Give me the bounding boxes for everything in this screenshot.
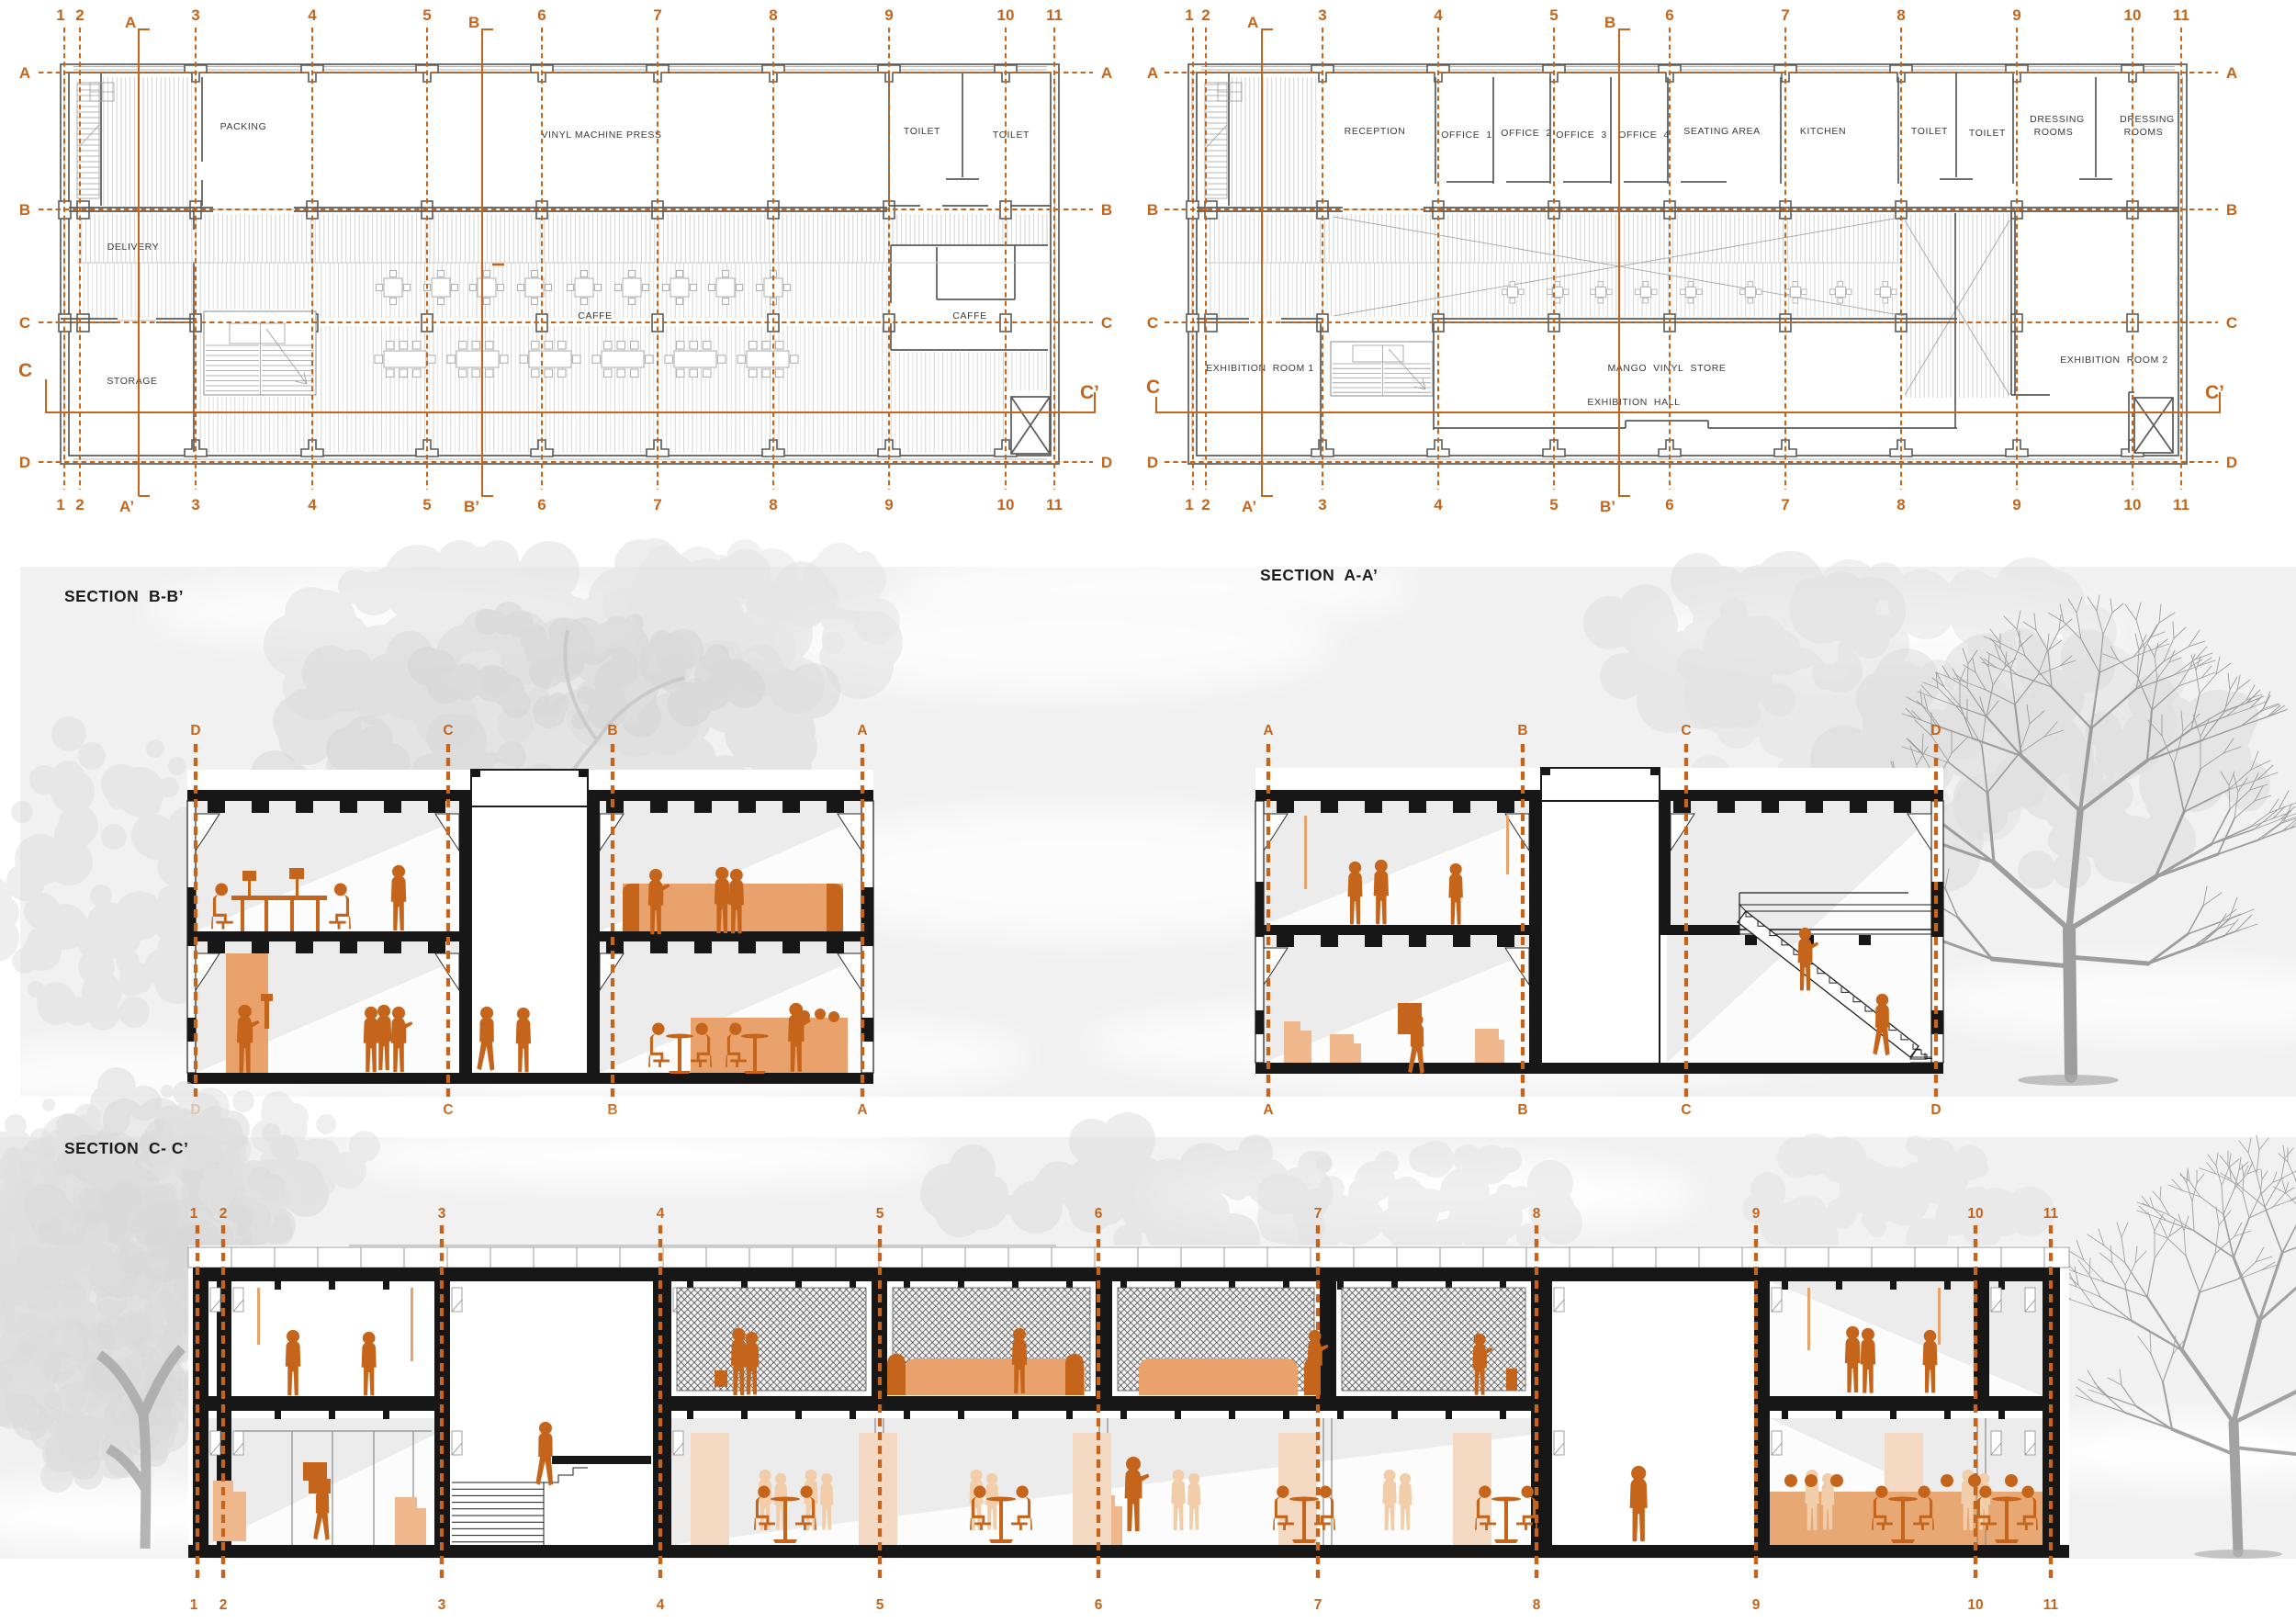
- svg-text:DRESSING: DRESSING: [2120, 114, 2175, 125]
- svg-text:2: 2: [219, 1206, 228, 1222]
- svg-text:B: B: [607, 1102, 617, 1118]
- svg-text:11: 11: [2043, 1597, 2059, 1613]
- svg-text:1: 1: [1185, 6, 1193, 24]
- svg-text:10: 10: [997, 496, 1015, 513]
- svg-text:4: 4: [657, 1597, 665, 1613]
- svg-text:MANGO VINYL STORE: MANGO VINYL STORE: [1607, 363, 1726, 374]
- svg-text:B: B: [1517, 723, 1527, 738]
- svg-text:8: 8: [1533, 1206, 1541, 1222]
- svg-text:2: 2: [219, 1597, 228, 1613]
- svg-text:7: 7: [1314, 1206, 1322, 1222]
- svg-text:6: 6: [1095, 1597, 1103, 1613]
- svg-text:8: 8: [1896, 496, 1905, 513]
- svg-text:PACKING: PACKING: [220, 121, 267, 132]
- svg-text:EXHIBITION HALL: EXHIBITION HALL: [1587, 397, 1680, 408]
- svg-text:A: A: [1147, 64, 1158, 82]
- svg-text:6: 6: [537, 496, 546, 513]
- svg-text:B’: B’: [1600, 498, 1615, 515]
- svg-text:KITCHEN: KITCHEN: [1800, 126, 1846, 137]
- svg-text:6: 6: [1095, 1206, 1103, 1222]
- svg-text:B: B: [607, 723, 617, 738]
- svg-text:10: 10: [2124, 6, 2142, 24]
- svg-text:1: 1: [56, 496, 64, 513]
- svg-text:OFFICE 2: OFFICE 2: [1501, 128, 1552, 139]
- svg-text:EXHIBITION ROOM 2: EXHIBITION ROOM 2: [2060, 355, 2168, 366]
- svg-text:1: 1: [190, 1597, 198, 1613]
- svg-text:C: C: [1681, 723, 1691, 738]
- svg-text:B’: B’: [464, 498, 479, 515]
- svg-text:CAFFE: CAFFE: [952, 310, 986, 321]
- svg-text:9: 9: [884, 496, 893, 513]
- svg-text:A: A: [1247, 14, 1258, 31]
- svg-text:11: 11: [2173, 6, 2189, 24]
- svg-text:9: 9: [1752, 1206, 1761, 1222]
- svg-text:B: B: [1517, 1102, 1527, 1118]
- svg-text:B: B: [1604, 14, 1615, 31]
- svg-text:4: 4: [308, 6, 317, 24]
- svg-text:8: 8: [769, 6, 777, 24]
- svg-text:DELIVERY: DELIVERY: [107, 242, 160, 253]
- svg-text:A’: A’: [1242, 498, 1256, 515]
- svg-text:TOILET: TOILET: [1911, 126, 1948, 137]
- svg-text:A: A: [1263, 1102, 1273, 1118]
- svg-text:4: 4: [657, 1206, 665, 1222]
- svg-text:A: A: [857, 1102, 867, 1118]
- svg-text:A: A: [19, 64, 30, 82]
- svg-text:5: 5: [1549, 496, 1558, 513]
- svg-text:DRESSING: DRESSING: [2030, 114, 2085, 125]
- svg-text:C’: C’: [1080, 382, 1099, 403]
- svg-text:3: 3: [438, 1597, 446, 1613]
- svg-text:A: A: [857, 723, 867, 738]
- svg-text:SECTION A-A’: SECTION A-A’: [1260, 566, 1378, 584]
- svg-text:C’: C’: [2205, 382, 2224, 403]
- svg-text:C: C: [1146, 377, 1160, 398]
- svg-text:C: C: [19, 314, 30, 332]
- svg-text:SECTION C- C’: SECTION C- C’: [64, 1139, 188, 1157]
- svg-text:A: A: [1101, 64, 1112, 82]
- svg-text:4: 4: [1434, 496, 1443, 513]
- svg-text:C: C: [2226, 314, 2237, 332]
- svg-text:SECTION B-B’: SECTION B-B’: [64, 587, 184, 605]
- svg-text:ROOMS: ROOMS: [2124, 127, 2164, 138]
- svg-text:3: 3: [1318, 496, 1326, 513]
- svg-text:D: D: [1147, 454, 1158, 471]
- svg-text:SEATING AREA: SEATING AREA: [1683, 126, 1760, 137]
- svg-text:ROOMS: ROOMS: [2034, 127, 2074, 138]
- svg-text:3: 3: [191, 496, 199, 513]
- svg-text:10: 10: [997, 6, 1015, 24]
- svg-text:A: A: [1263, 723, 1273, 738]
- svg-text:5: 5: [1549, 6, 1558, 24]
- svg-text:10: 10: [2124, 496, 2142, 513]
- svg-text:2: 2: [75, 496, 84, 513]
- svg-text:9: 9: [884, 6, 893, 24]
- svg-text:6: 6: [537, 6, 546, 24]
- svg-text:7: 7: [653, 6, 661, 24]
- svg-text:1: 1: [1185, 496, 1193, 513]
- svg-text:C: C: [443, 723, 453, 738]
- svg-text:5: 5: [876, 1597, 884, 1613]
- svg-text:8: 8: [769, 496, 777, 513]
- svg-text:2: 2: [1201, 6, 1210, 24]
- svg-text:C: C: [1101, 314, 1112, 332]
- svg-text:VINYL MACHINE PRESS: VINYL MACHINE PRESS: [541, 130, 661, 141]
- svg-text:C: C: [443, 1102, 453, 1118]
- svg-text:C: C: [18, 360, 32, 381]
- svg-text:OFFICE 3: OFFICE 3: [1556, 130, 1607, 141]
- svg-text:9: 9: [2012, 496, 2020, 513]
- svg-text:9: 9: [2012, 6, 2020, 24]
- svg-text:3: 3: [191, 6, 199, 24]
- svg-text:C: C: [1147, 314, 1158, 332]
- svg-text:D: D: [1930, 723, 1941, 738]
- svg-text:2: 2: [1201, 496, 1210, 513]
- svg-text:7: 7: [1314, 1597, 1322, 1613]
- svg-text:10: 10: [1967, 1206, 1983, 1222]
- svg-text:10: 10: [1967, 1597, 1983, 1613]
- svg-text:11: 11: [1046, 6, 1063, 24]
- svg-text:5: 5: [876, 1206, 884, 1222]
- svg-text:D: D: [1930, 1102, 1941, 1118]
- svg-text:7: 7: [653, 496, 661, 513]
- svg-text:D: D: [190, 723, 200, 738]
- svg-text:2: 2: [75, 6, 84, 24]
- svg-text:A: A: [125, 14, 136, 31]
- svg-text:6: 6: [1665, 496, 1673, 513]
- svg-text:A: A: [2226, 64, 2237, 82]
- svg-text:TOILET: TOILET: [993, 130, 1030, 141]
- svg-text:4: 4: [1434, 6, 1443, 24]
- svg-text:5: 5: [422, 6, 431, 24]
- svg-text:3: 3: [1318, 6, 1326, 24]
- svg-text:B: B: [19, 201, 30, 219]
- svg-text:7: 7: [1781, 6, 1789, 24]
- svg-text:6: 6: [1665, 6, 1673, 24]
- svg-text:3: 3: [438, 1206, 446, 1222]
- svg-text:B: B: [1147, 201, 1158, 219]
- svg-text:4: 4: [308, 496, 317, 513]
- svg-text:7: 7: [1781, 496, 1789, 513]
- svg-text:STORAGE: STORAGE: [107, 376, 157, 387]
- svg-text:11: 11: [2043, 1206, 2059, 1222]
- svg-text:C: C: [1681, 1102, 1691, 1118]
- svg-text:8: 8: [1896, 6, 1905, 24]
- svg-text:RECEPTION: RECEPTION: [1345, 126, 1406, 137]
- svg-text:D: D: [19, 454, 30, 471]
- svg-text:D: D: [1101, 454, 1112, 471]
- svg-text:5: 5: [422, 496, 431, 513]
- svg-text:B: B: [468, 14, 479, 31]
- svg-text:B: B: [1101, 201, 1112, 219]
- svg-text:OFFICE 1: OFFICE 1: [1441, 130, 1492, 141]
- svg-text:11: 11: [1046, 496, 1063, 513]
- svg-text:11: 11: [2173, 496, 2189, 513]
- svg-text:TOILET: TOILET: [1969, 128, 2006, 139]
- svg-text:B: B: [2226, 201, 2237, 219]
- svg-text:1: 1: [56, 6, 64, 24]
- svg-text:D: D: [2226, 454, 2237, 471]
- svg-text:1: 1: [190, 1206, 198, 1222]
- svg-text:8: 8: [1533, 1597, 1541, 1613]
- svg-text:TOILET: TOILET: [904, 126, 940, 137]
- svg-text:EXHIBITION ROOM 1: EXHIBITION ROOM 1: [1206, 363, 1314, 374]
- svg-text:9: 9: [1752, 1597, 1761, 1613]
- svg-text:CAFFE: CAFFE: [578, 310, 612, 321]
- svg-text:OFFICE 4: OFFICE 4: [1618, 130, 1670, 141]
- svg-text:A’: A’: [119, 498, 134, 515]
